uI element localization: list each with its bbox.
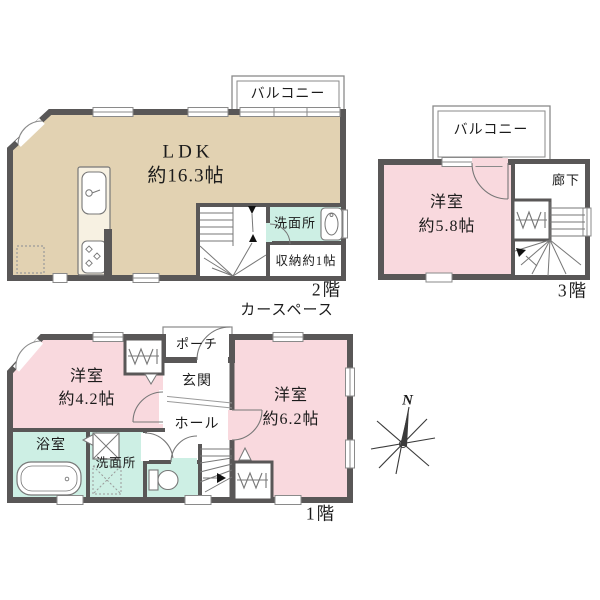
door-arc: [171, 436, 197, 466]
window: [275, 496, 301, 505]
bedroom-west-size-label: 約4.2帖: [58, 392, 115, 408]
storage-label: 収納約1帖: [275, 255, 336, 268]
window: [188, 108, 228, 117]
bedroom-east-size-label: 約6.2帖: [262, 412, 319, 428]
porch-label: ポーチ: [176, 338, 218, 351]
north-label: N: [402, 394, 414, 409]
bathtub-icon: [17, 462, 81, 495]
ldk-label: LDK: [162, 143, 213, 162]
washroom-1f-label: 洗面所: [96, 457, 137, 470]
compass-rose-icon: [371, 407, 435, 474]
window: [346, 440, 355, 468]
window: [273, 333, 303, 342]
floor2-label: 2階: [312, 281, 342, 299]
bedroom-3f-label: 洋室: [430, 195, 464, 211]
floor1-label: 1階: [306, 505, 336, 523]
floor3-label: 3階: [558, 282, 588, 300]
window: [93, 333, 123, 342]
washroom-2f-label: 洗面所: [274, 217, 316, 230]
window: [185, 496, 211, 505]
window: [346, 368, 355, 396]
window: [93, 108, 133, 117]
toilet-icon: [149, 470, 178, 490]
corridor-label: 廊下: [552, 174, 580, 187]
hall-label: ホール: [175, 418, 220, 432]
bedroom-west-label: 洋室: [70, 369, 104, 385]
entrance-label: 玄関: [182, 375, 212, 389]
window: [53, 274, 67, 283]
bathroom-label: 浴室: [36, 439, 66, 453]
balcony-2f-label: バルコニー: [251, 88, 326, 102]
entrance-step-line: [163, 396, 232, 408]
floor-plan-canvas: バルコニー LDK 約16.3帖 洗面所 収納約1帖 2階 バルコニー 洋室 約…: [0, 0, 600, 600]
bedroom-3f-size-label: 約5.8帖: [418, 219, 475, 235]
door-arc: [141, 433, 173, 461]
balcony-window: [240, 108, 340, 117]
kitchen-counter-icon: [78, 167, 112, 277]
vanity-sink-icon: [321, 208, 342, 240]
ldk-size-label: 約16.3帖: [147, 167, 224, 186]
stairs-icon: [200, 449, 232, 492]
car-space-label: カースペース: [240, 304, 333, 319]
balcony-3f-label: バルコニー: [454, 124, 529, 138]
window: [133, 274, 159, 283]
window: [57, 496, 83, 505]
bedroom-east-label: 洋室: [274, 388, 308, 404]
window: [426, 273, 452, 282]
